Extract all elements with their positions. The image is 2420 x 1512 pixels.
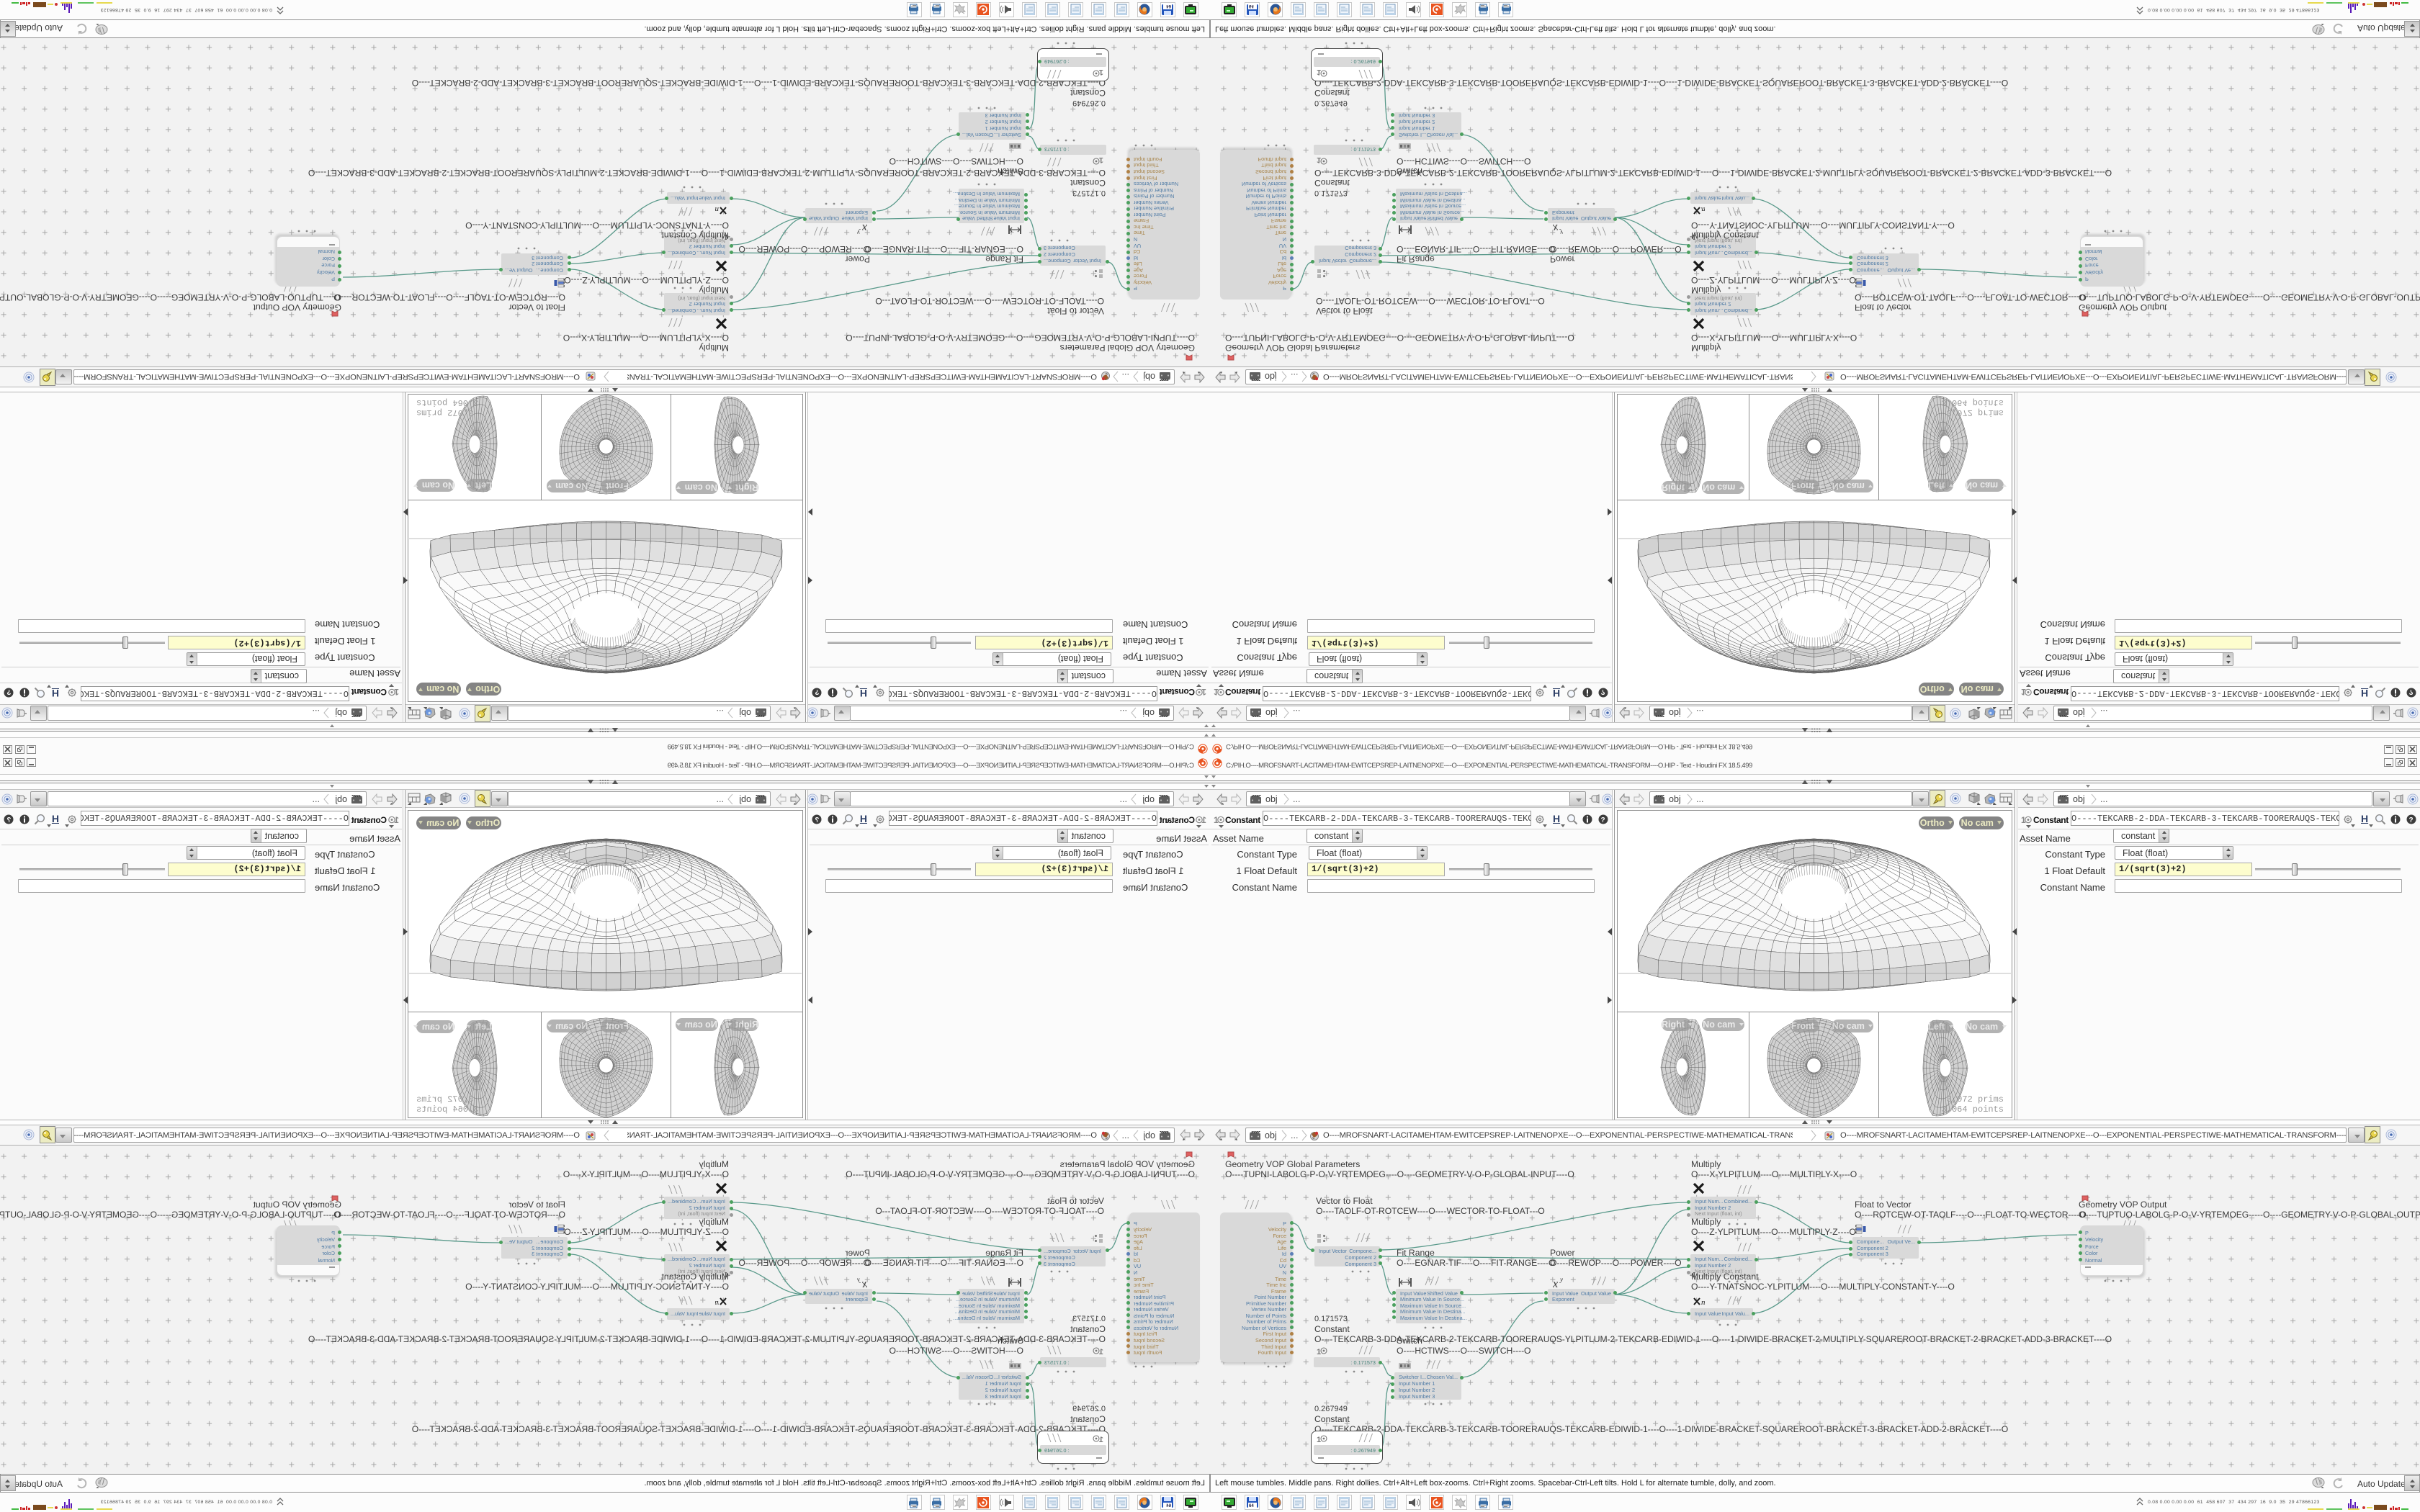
svg-text:1: 1 — [1099, 156, 1103, 164]
svg-text:1: 1 — [1099, 68, 1103, 76]
svg-text:y: y — [857, 1276, 861, 1283]
svg-text:?: ? — [815, 688, 819, 696]
svg-text:1: 1 — [1317, 156, 1321, 164]
svg-text:?: ? — [6, 688, 11, 696]
svg-text:64: 64 — [1166, 1504, 1171, 1508]
svg-text:n: n — [714, 206, 719, 214]
svg-text:x: x — [1553, 223, 1558, 234]
svg-text:64: 64 — [1249, 4, 1254, 8]
svg-text:1: 1 — [1317, 1348, 1321, 1356]
svg-text:?: ? — [2409, 688, 2414, 696]
svg-text:n: n — [714, 1298, 719, 1306]
svg-text:1: 1 — [1317, 1436, 1321, 1444]
svg-text:64: 64 — [1166, 4, 1171, 8]
svg-text:?: ? — [2409, 816, 2414, 824]
svg-text:?: ? — [815, 816, 819, 824]
svg-text:?: ? — [1601, 688, 1605, 696]
svg-text:1: 1 — [1099, 1348, 1103, 1356]
svg-text:?: ? — [1601, 816, 1605, 824]
svg-text:1: 1 — [1317, 68, 1321, 76]
svg-text:y: y — [857, 229, 861, 236]
svg-text:x: x — [1553, 1278, 1558, 1289]
svg-text:x: x — [862, 223, 867, 234]
svg-text:n: n — [1701, 1298, 1706, 1306]
svg-text:y: y — [1559, 1276, 1563, 1283]
svg-text:?: ? — [6, 816, 11, 824]
svg-text:1: 1 — [1099, 1436, 1103, 1444]
svg-text:64: 64 — [1249, 1504, 1254, 1508]
svg-text:x: x — [862, 1278, 867, 1289]
svg-text:n: n — [1701, 206, 1706, 214]
svg-text:y: y — [1559, 229, 1563, 236]
